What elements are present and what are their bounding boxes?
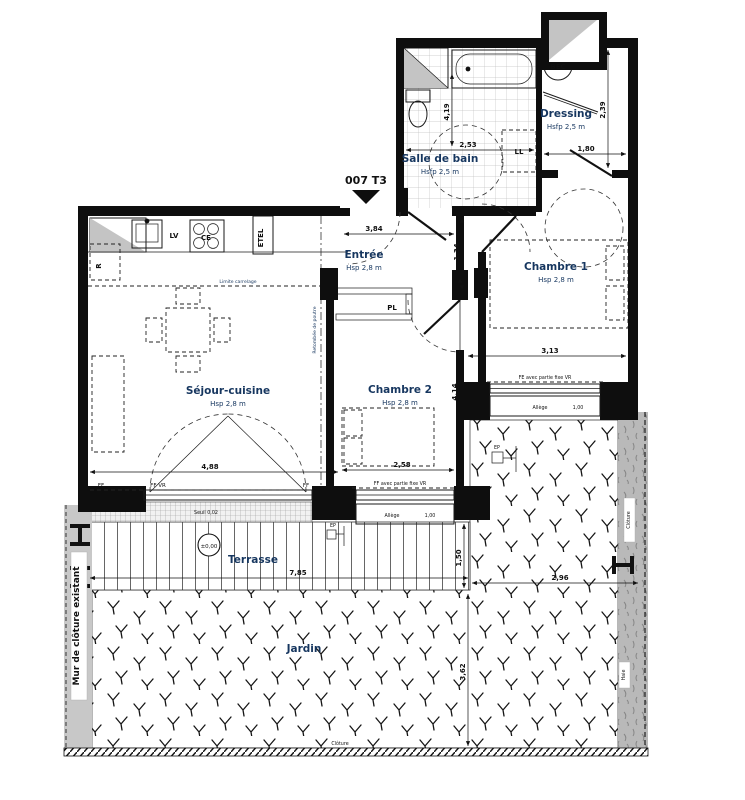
dim-dressing-width: 1,80 [577, 145, 594, 153]
wall-right [628, 38, 638, 384]
entrance-marker-icon [352, 190, 380, 204]
room-height-sejour: Hsp 2,8 m [210, 400, 246, 408]
label-lv: LV [170, 232, 179, 240]
dim-jardin-depth: 3,62 [459, 663, 467, 680]
label-mur-cloture: Mur de clôture existant [71, 566, 82, 686]
window-chambre2 [356, 490, 454, 500]
label-ff2: FF VR [150, 483, 166, 489]
label-seuil: Seuil 0,02 [194, 510, 218, 516]
label-ep2: EP [494, 445, 500, 451]
label-r: R [95, 263, 103, 269]
value-allege1: 1,00 [425, 513, 436, 519]
burner-icon [208, 224, 219, 235]
bathroom-door-leaf [408, 212, 446, 240]
label-niveau: ±0,00 [201, 544, 218, 550]
burner-icon [194, 224, 205, 235]
chambre1-turning-circle [545, 189, 623, 267]
wall-dressing-bottom-l [542, 170, 558, 178]
wall-pier-1 [312, 486, 356, 520]
kitchen-corner-triangle [90, 218, 146, 252]
wall-pier-5 [462, 382, 490, 420]
label-fe-fixe: FE avec partie fixe VR [519, 375, 572, 381]
kitchen-sink-basin [136, 224, 158, 242]
room-height-dressing: Hsfp 2,5 m [547, 123, 585, 131]
allege-box-ch2 [356, 504, 454, 524]
chambre1-door-leaf [482, 216, 516, 252]
bed2-icon [342, 408, 434, 466]
dim-bath-width: 2,53 [459, 141, 476, 149]
wall-corner-se [600, 382, 638, 420]
dim-bath-length: 4,19 [443, 103, 451, 120]
label-ff-fixe: FF avec partie fixe VR [374, 481, 427, 487]
wall-pier-2 [454, 486, 490, 520]
floor-plan-page: 3,84 1,34 2,53 4,19 1,80 2,39 3,13 4,14 … [0, 0, 745, 800]
hedge-strip [618, 412, 648, 756]
fence-band [64, 748, 648, 756]
unit-title: 007 T3 [345, 174, 387, 187]
room-label-chambre1: Chambre 1 [524, 261, 588, 273]
label-ff3: FF [303, 483, 309, 489]
dim-chambre2-width: 2,58 [393, 461, 410, 469]
wall-dressing-bottom-r [612, 170, 638, 178]
label-retombee-poutre: Retombée de poutre [311, 306, 318, 353]
label-ce: CE [201, 234, 211, 242]
room-label-sdb: Salle de bain [402, 153, 479, 165]
floor-plan-svg: 3,84 1,34 2,53 4,19 1,80 2,39 3,13 4,14 … [0, 0, 745, 800]
room-label-entree: Entrée [344, 249, 383, 261]
wall-sejour-left [78, 206, 88, 510]
label-allege1: Allège [385, 512, 400, 519]
terrace-decking [88, 522, 470, 590]
wall-sejour-ch2 [326, 298, 334, 488]
room-height-entree: Hsp 2,8 m [346, 264, 382, 272]
french-door-leaf-r [228, 416, 306, 492]
window-chambre1 [490, 384, 600, 393]
value-allege2: 1,00 [573, 405, 584, 411]
french-door-leaf-l [150, 416, 228, 492]
label-haie: Haie [621, 670, 627, 681]
label-cloture-right: Clôture [625, 511, 632, 528]
wall-sejour-top [78, 206, 340, 216]
wall-hall-connector [536, 176, 542, 212]
room-height-chambre2: Hsp 2,8 m [382, 399, 418, 407]
room-label-dressing: Dressing [540, 108, 592, 120]
french-window-sejour [144, 490, 312, 500]
room-label-terrasse: Terrasse [228, 554, 278, 566]
wall-bath-left [396, 38, 404, 208]
wall-pier-6 [320, 268, 338, 300]
dim-chambre2-height: 4,14 [451, 383, 459, 400]
dim-hall-height: 1,34 [453, 243, 461, 260]
wall-entry-stub-l [340, 208, 350, 216]
bed1-icon [490, 240, 628, 328]
dim-chambre1-width: 3,13 [541, 347, 558, 355]
label-limite-carrelage: Limite carrelage [219, 279, 256, 285]
dim-jardin-width: 2,96 [551, 574, 568, 582]
wall-bath-bottom [452, 206, 536, 216]
dim-dressing-height: 2,39 [599, 101, 607, 118]
kitchen-tap-icon [145, 219, 150, 224]
label-ep1: EP [330, 523, 336, 529]
chambre2-door-leaf [424, 300, 460, 334]
label-bec: BEC [550, 63, 565, 71]
room-label-jardin: Jardin [286, 643, 322, 655]
label-allege2: Allège [533, 404, 548, 411]
dining-table-icon [146, 288, 230, 372]
dim-sejour-width: 4,88 [201, 463, 218, 471]
room-label-sejour: Séjour-cuisine [186, 385, 270, 397]
sofa-icon [92, 356, 124, 452]
label-ll: LL [515, 148, 524, 156]
dim-terrasse-depth: 1,50 [455, 549, 463, 566]
label-ff1: FF [98, 483, 104, 489]
label-cloture-bottom: Clôture [331, 740, 348, 747]
entry-closet [336, 288, 412, 320]
room-height-sdb: Hsfp 2,5 m [421, 168, 459, 176]
room-height-chambre1: Hsp 2,8 m [538, 276, 574, 284]
ground-surfaces [64, 46, 648, 756]
wall-pier-4 [474, 268, 488, 298]
label-etel: ETEL [257, 228, 265, 247]
room-label-chambre2: Chambre 2 [368, 384, 432, 396]
dim-entree-width: 3,84 [365, 225, 382, 233]
label-pl: PL [387, 304, 397, 312]
dim-terrasse-width: 7,85 [289, 569, 306, 577]
